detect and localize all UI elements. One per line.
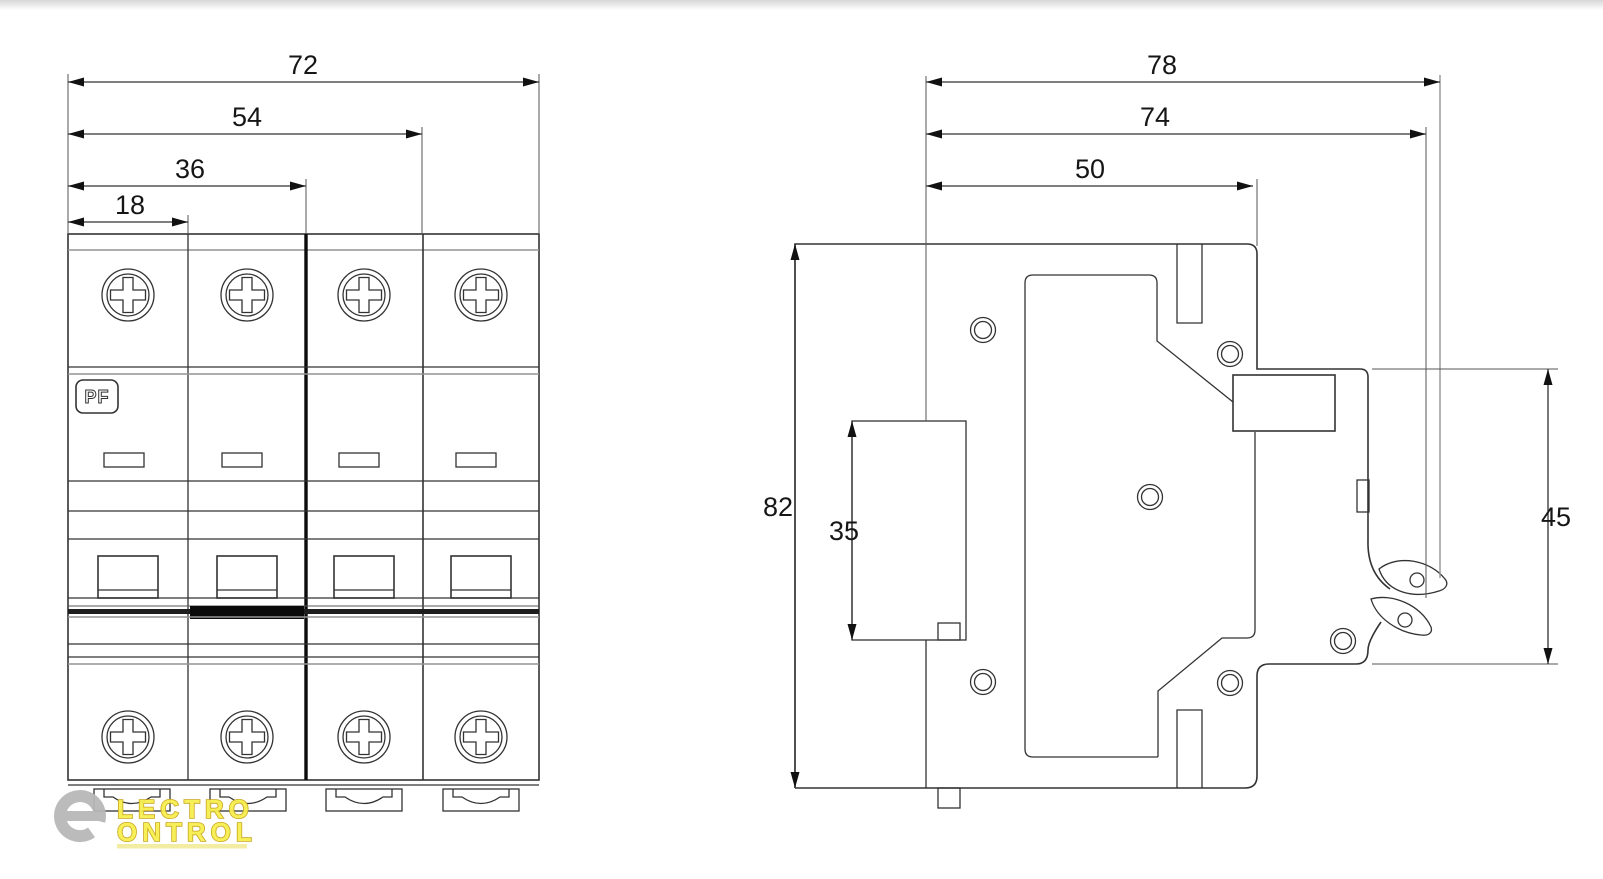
dimension-label-18: 18 [115,190,145,220]
front-section-contour [1025,275,1233,757]
watermark-underline [117,844,247,849]
rivet-icon [1218,342,1243,367]
dimension-82: 82 [763,244,800,788]
dimension-18: 18 [68,190,188,234]
drawing-page: PF 72 [0,0,1603,879]
dimension-label-54: 54 [232,102,262,132]
dimension-label-72: 72 [288,50,318,80]
din-clip [1371,561,1447,636]
screw-icon [455,711,507,763]
screw-icon [338,711,390,763]
screw-icon [221,711,273,763]
top-notch [1177,244,1202,323]
rivet-icon [1331,629,1356,654]
screw-icon [102,269,154,321]
rivet-icon [1138,485,1163,510]
toggle-handle [98,556,158,598]
logo-e-icon [60,796,104,836]
screw-icon [338,269,390,321]
toggle-handle [334,556,394,598]
front-body-outline [68,234,539,780]
terminal-tab [443,789,519,811]
indicator-window [339,453,379,467]
toggle-handle [451,556,511,598]
breaker-dimension-drawing: PF 72 [0,0,1603,879]
rivet-icon [971,670,996,695]
dimension-35: 35 [829,421,859,640]
indicator-window [456,453,496,467]
screw-icon [102,711,154,763]
dimension-label-78: 78 [1147,50,1177,80]
front-view: PF 72 [68,50,539,811]
din-rail-section [852,421,966,640]
front-section-contour-lower [1158,432,1255,757]
dimension-label-74: 74 [1140,102,1170,132]
pf-badge: PF [76,380,118,413]
dimension-50: 50 [926,154,1257,246]
terminal-tab [326,789,402,811]
din-rail-hook [938,623,960,640]
dimension-label-36: 36 [175,154,205,184]
side-body-outline-lower [795,622,1381,788]
watermark-logo: LECTRO ONTROL [60,794,257,849]
mounting-foot [938,788,960,808]
pf-label: PF [84,387,109,407]
dimension-label-45: 45 [1541,502,1571,532]
toggle-handle [217,556,277,598]
dimension-label-50: 50 [1075,154,1105,184]
side-body-outline [795,244,1368,788]
indicator-window [104,453,144,467]
screw-icon [221,269,273,321]
dimension-74: 74 [926,102,1426,598]
indicator-window [222,453,262,467]
rivet-icon [1218,671,1243,696]
side-view: 78 74 50 82 [763,50,1571,808]
dimension-78: 78 [926,50,1440,578]
screw-icon [455,269,507,321]
bottom-notch [1177,710,1202,788]
watermark-line2: ONTROL [117,817,257,847]
dimension-label-35: 35 [829,516,859,546]
toggle-handle-side [1233,375,1335,431]
rivet-icon [971,318,996,343]
dimension-label-82: 82 [763,492,793,522]
